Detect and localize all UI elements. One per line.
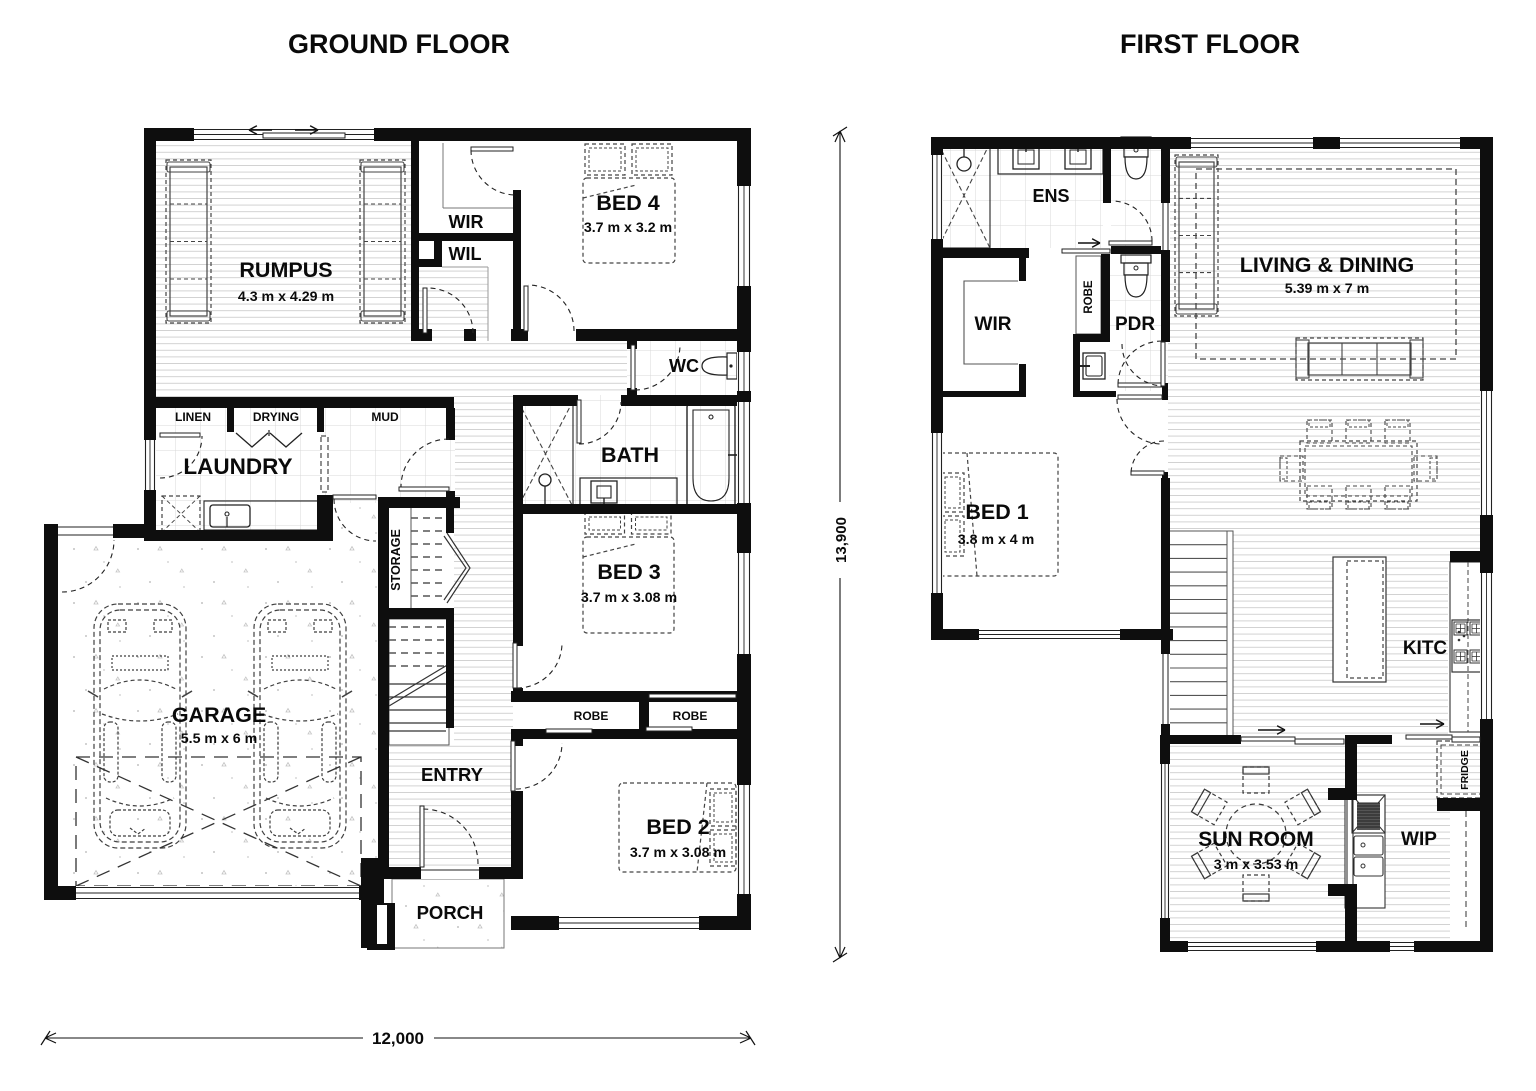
svg-text:MUD: MUD <box>371 410 399 424</box>
svg-text:WC: WC <box>669 356 699 376</box>
svg-text:3.7 m x 3.08 m: 3.7 m x 3.08 m <box>581 590 677 606</box>
svg-text:BED 2: BED 2 <box>646 815 709 839</box>
svg-text:5.5 m x 6 m: 5.5 m x 6 m <box>181 731 258 747</box>
svg-text:WIR: WIR <box>975 314 1012 335</box>
svg-text:BED 3: BED 3 <box>597 560 660 584</box>
svg-text:PDR: PDR <box>1115 314 1155 335</box>
svg-text:12,000: 12,000 <box>372 1029 424 1048</box>
svg-text:KITC: KITC <box>1403 638 1448 659</box>
svg-text:5.39 m x 7 m: 5.39 m x 7 m <box>1285 281 1369 297</box>
svg-text:GROUND FLOOR: GROUND FLOOR <box>288 29 510 59</box>
svg-text:3.7 m x 3.2 m: 3.7 m x 3.2 m <box>584 220 672 236</box>
svg-text:PORCH: PORCH <box>417 902 484 923</box>
svg-text:3 m x 3.53 m: 3 m x 3.53 m <box>1214 857 1298 873</box>
svg-text:FIRST FLOOR: FIRST FLOOR <box>1120 29 1300 59</box>
svg-text:SUN ROOM: SUN ROOM <box>1198 828 1314 851</box>
svg-text:3.7 m x 3.08 m: 3.7 m x 3.08 m <box>630 845 726 861</box>
svg-text:RUMPUS: RUMPUS <box>239 258 332 282</box>
svg-text:ROBE: ROBE <box>1083 280 1095 314</box>
svg-text:ROBE: ROBE <box>574 709 609 723</box>
svg-text:GARAGE: GARAGE <box>172 703 266 727</box>
svg-text:ENS: ENS <box>1032 186 1069 206</box>
svg-text:BED 1: BED 1 <box>965 500 1028 524</box>
svg-text:WIR: WIR <box>449 212 484 232</box>
svg-text:ENTRY: ENTRY <box>421 764 484 785</box>
svg-text:4.3 m x 4.29 m: 4.3 m x 4.29 m <box>238 289 334 305</box>
svg-text:LINEN: LINEN <box>175 410 211 424</box>
svg-text:DRYING: DRYING <box>253 410 299 424</box>
svg-text:ROBE: ROBE <box>673 709 708 723</box>
svg-text:WIP: WIP <box>1401 829 1437 850</box>
svg-text:LIVING & DINING: LIVING & DINING <box>1240 253 1414 277</box>
svg-text:3.8 m x 4 m: 3.8 m x 4 m <box>958 532 1035 548</box>
svg-text:FRIDGE: FRIDGE <box>1459 750 1471 790</box>
svg-text:LAUNDRY: LAUNDRY <box>183 454 292 479</box>
svg-text:WIL: WIL <box>449 244 482 264</box>
svg-text:BATH: BATH <box>601 443 659 467</box>
svg-text:BED 4: BED 4 <box>596 191 659 215</box>
svg-text:STORAGE: STORAGE <box>389 529 403 591</box>
svg-text:13,900: 13,900 <box>833 517 850 563</box>
